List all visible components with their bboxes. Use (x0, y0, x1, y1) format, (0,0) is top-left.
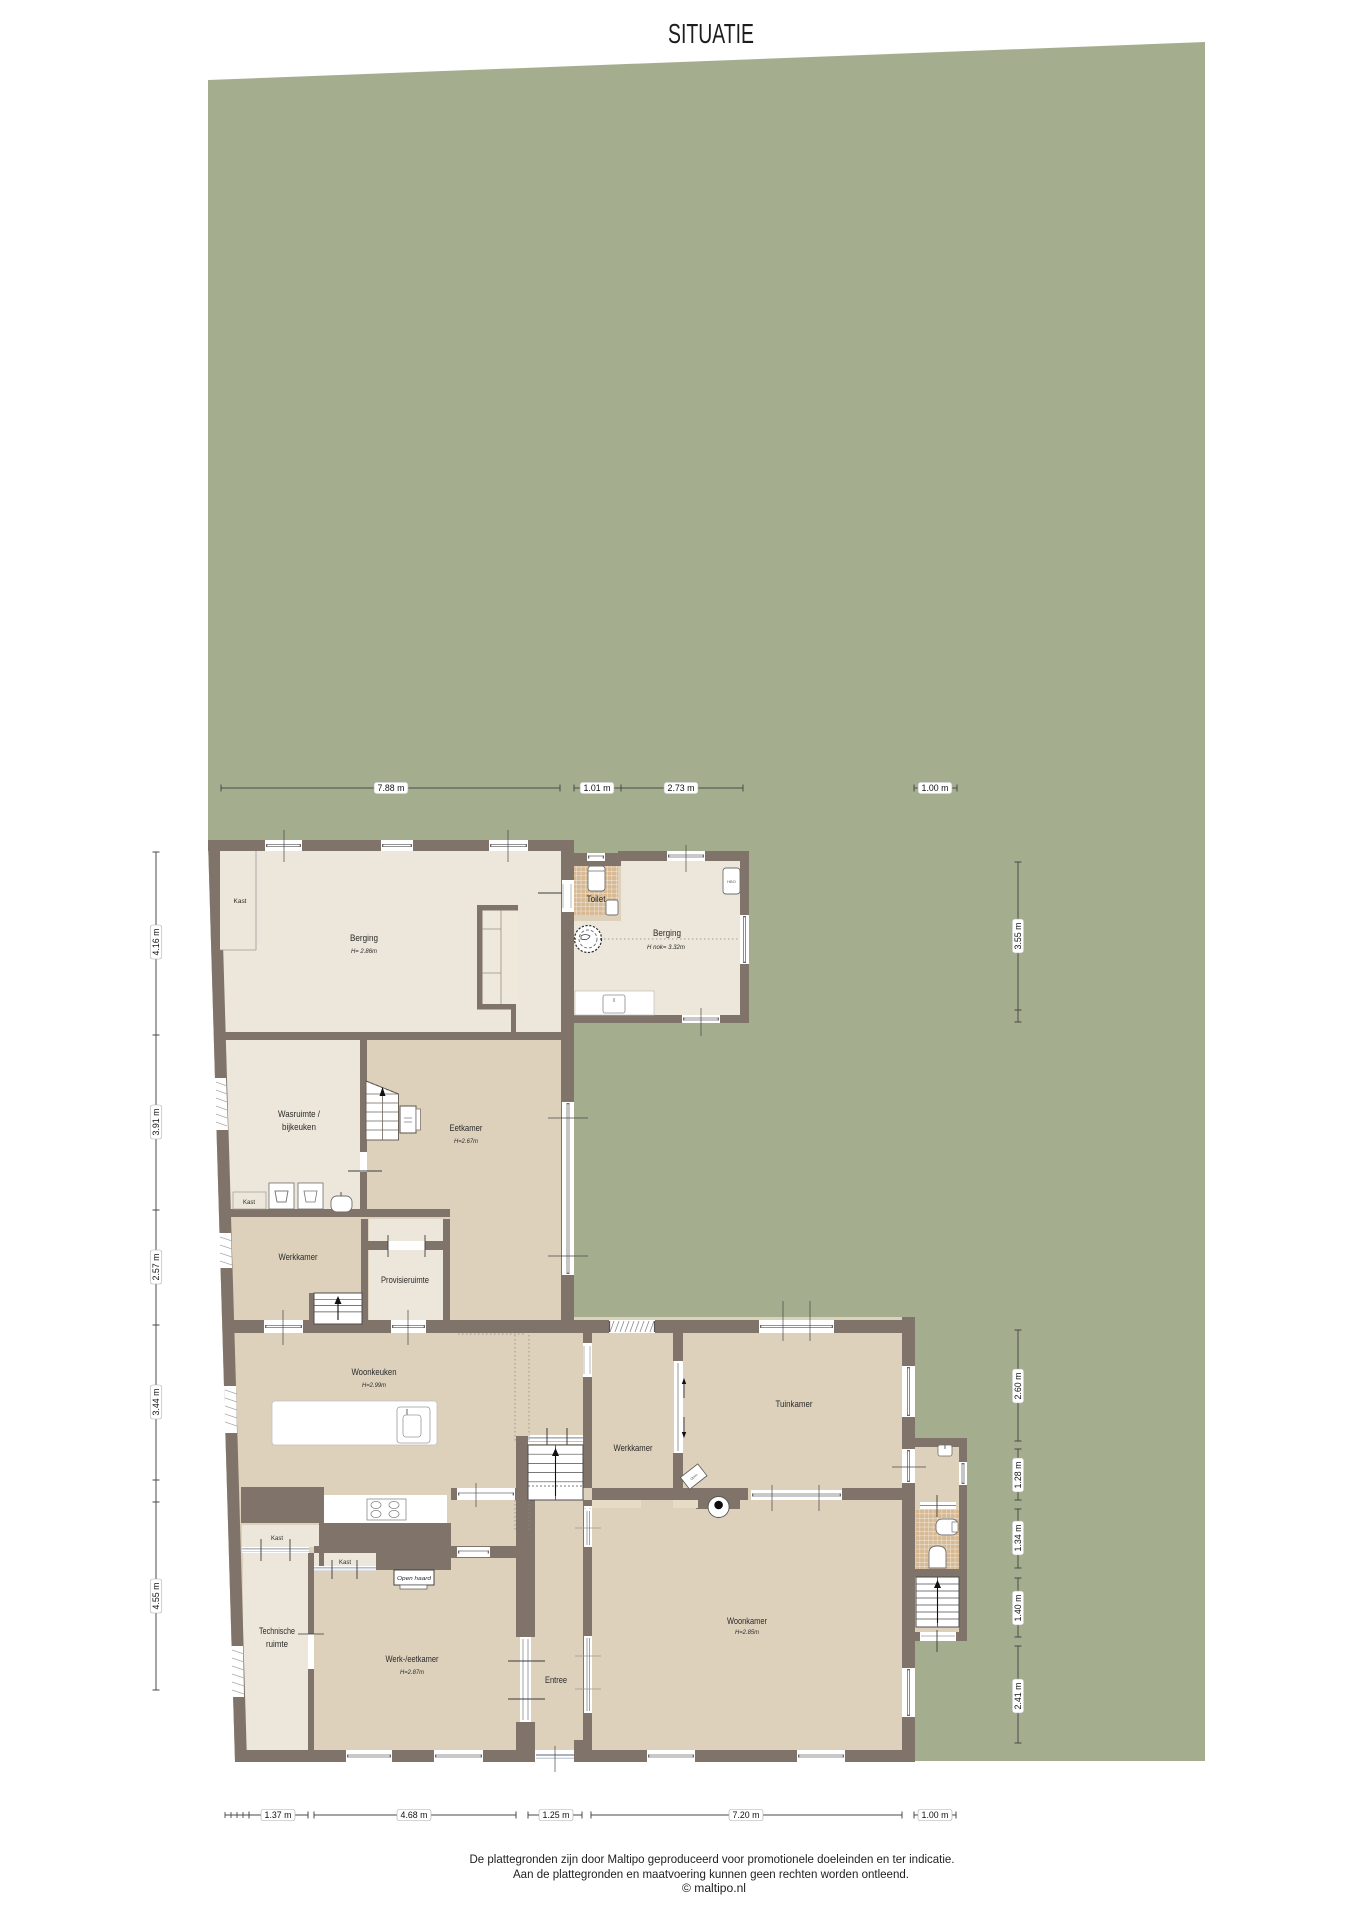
svg-text:4.55 m: 4.55 m (151, 1583, 161, 1610)
svg-text:H=2.85m: H=2.85m (735, 1629, 759, 1636)
svg-text:De plattegronden zijn door Mal: De plattegronden zijn door Maltipo gepro… (470, 1852, 955, 1866)
svg-text:H=2.87m: H=2.87m (400, 1669, 424, 1676)
svg-text:SITUATIE: SITUATIE (668, 18, 754, 49)
svg-text:3.44 m: 3.44 m (151, 1389, 161, 1416)
svg-text:Tuinkamer: Tuinkamer (776, 1399, 813, 1410)
svg-text:Kast: Kast (234, 898, 247, 905)
svg-text:4.16 m: 4.16 m (151, 929, 161, 956)
svg-text:Open haard: Open haard (397, 1576, 432, 1582)
svg-text:4.68 m: 4.68 m (401, 1810, 428, 1820)
svg-text:2.57 m: 2.57 m (151, 1254, 161, 1281)
svg-text:2.60 m: 2.60 m (1013, 1373, 1023, 1400)
svg-text:1.01 m: 1.01 m (584, 783, 611, 793)
svg-text:HBO: HBO (727, 879, 736, 884)
svg-text:1.37 m: 1.37 m (265, 1810, 292, 1820)
svg-text:1.25 m: 1.25 m (543, 1810, 570, 1820)
svg-text:Kast: Kast (243, 1200, 255, 1206)
svg-text:3.91 m: 3.91 m (151, 1109, 161, 1136)
svg-text:Wasruimte /: Wasruimte / (278, 1109, 320, 1120)
svg-text:Werkkamer: Werkkamer (614, 1443, 653, 1454)
svg-text:Entree: Entree (545, 1675, 567, 1686)
svg-text:Toilet: Toilet (587, 894, 606, 905)
svg-text:Provisieruimte: Provisieruimte (381, 1275, 429, 1286)
svg-text:H nok= 3.32m: H nok= 3.32m (647, 944, 685, 951)
svg-text:Technische: Technische (259, 1626, 295, 1637)
svg-text:Kast: Kast (339, 1560, 351, 1566)
svg-text:2.41 m: 2.41 m (1013, 1683, 1023, 1710)
svg-text:1.00 m: 1.00 m (922, 783, 949, 793)
svg-text:ruimte: ruimte (266, 1639, 288, 1650)
svg-text:1.00 m: 1.00 m (922, 1810, 949, 1820)
svg-text:H= 2.86m: H= 2.86m (351, 948, 377, 955)
svg-text:Berging: Berging (350, 933, 378, 944)
svg-text:Werk-/eetkamer: Werk-/eetkamer (386, 1654, 439, 1665)
svg-text:Werkkamer: Werkkamer (279, 1252, 318, 1263)
svg-text:Woonkamer: Woonkamer (727, 1616, 767, 1627)
svg-text:Berging: Berging (653, 928, 681, 939)
svg-text:7.88 m: 7.88 m (378, 783, 405, 793)
svg-text:H=2.99m: H=2.99m (362, 1382, 386, 1389)
svg-text:1.40 m: 1.40 m (1013, 1595, 1023, 1622)
svg-text:Woonkeuken: Woonkeuken (352, 1367, 397, 1378)
svg-text:H=2.67m: H=2.67m (454, 1138, 478, 1145)
svg-text:2.73 m: 2.73 m (668, 783, 695, 793)
svg-text:Eetkamer: Eetkamer (450, 1123, 483, 1134)
svg-text:© maltipo.nl: © maltipo.nl (682, 1881, 746, 1895)
svg-text:Kast: Kast (271, 1536, 283, 1542)
svg-text:Aan de plattegronden en maatvo: Aan de plattegronden en maatvoering kunn… (513, 1867, 909, 1881)
svg-text:1.34 m: 1.34 m (1013, 1525, 1023, 1552)
svg-text:3.55 m: 3.55 m (1013, 923, 1023, 950)
svg-text:7.20 m: 7.20 m (733, 1810, 760, 1820)
svg-text:bijkeuken: bijkeuken (282, 1122, 316, 1133)
svg-text:1.28 m: 1.28 m (1013, 1462, 1023, 1489)
